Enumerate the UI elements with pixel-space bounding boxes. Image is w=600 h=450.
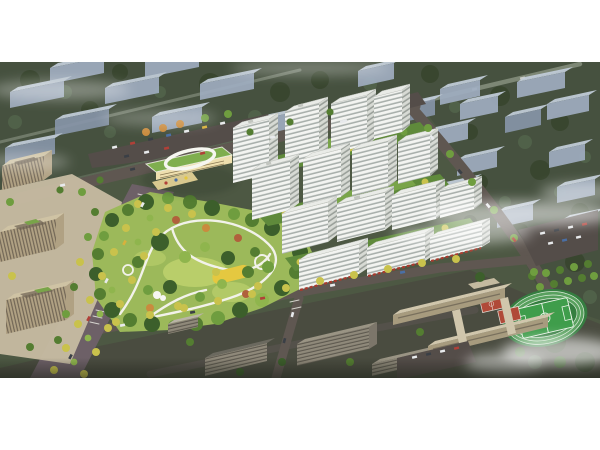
aerial-rendering [0,62,600,378]
page-background [0,0,600,450]
bottom-vignette [0,358,600,378]
rendering-image-area [0,62,600,378]
